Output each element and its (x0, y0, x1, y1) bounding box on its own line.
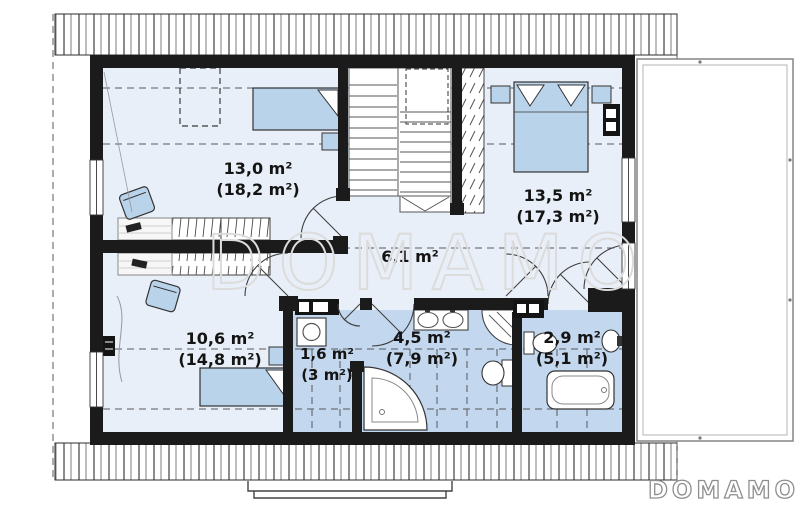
floor-plan-page: 13,0 m²(18,2 m²) 13,5 m²(17,3 m²) 6,1 m²… (0, 0, 800, 506)
roof-hatch-bottom (55, 443, 677, 480)
room-label-2-9: 2,9 m²(5,1 m²) (507, 327, 637, 369)
brand-logo: DOMAMO (648, 476, 799, 504)
desk-top (118, 218, 172, 240)
single-bed-bottom (200, 368, 288, 406)
balcony (637, 59, 793, 441)
dormer-outline (248, 481, 452, 498)
bathtub (547, 371, 614, 409)
window-left-bottom (90, 352, 103, 407)
balcony-door (622, 243, 635, 289)
wardrobe-bottom (172, 253, 270, 275)
wardrobe-top (172, 218, 270, 240)
washing-machine (297, 318, 326, 346)
window-left-top (90, 160, 103, 215)
desk-bottom (118, 253, 172, 275)
radiator (103, 336, 115, 356)
double-bed (514, 82, 588, 172)
room-label-6-1: 6,1 m² (370, 246, 450, 267)
nightstand (592, 86, 611, 103)
room-label-1-6: 1,6 m²(3 m²) (287, 344, 367, 386)
nightstand (491, 86, 510, 103)
wall-appliance (513, 300, 544, 318)
room-label-4-5: 4,5 m²(7,9 m²) (357, 327, 487, 369)
room-label-13-0: 13,0 m²(18,2 m²) (193, 158, 323, 200)
single-bed-top (253, 88, 340, 130)
dresser (603, 104, 620, 136)
staircase (349, 68, 451, 212)
room-label-13-5: 13,5 m²(17,3 m²) (493, 185, 623, 227)
nightstand (322, 133, 340, 150)
roof-hatch-top (55, 14, 677, 55)
room-label-10-6: 10,6 m²(14,8 m²) (155, 328, 285, 370)
window-right-bedroom (622, 158, 635, 222)
laundry-counter (295, 299, 339, 315)
